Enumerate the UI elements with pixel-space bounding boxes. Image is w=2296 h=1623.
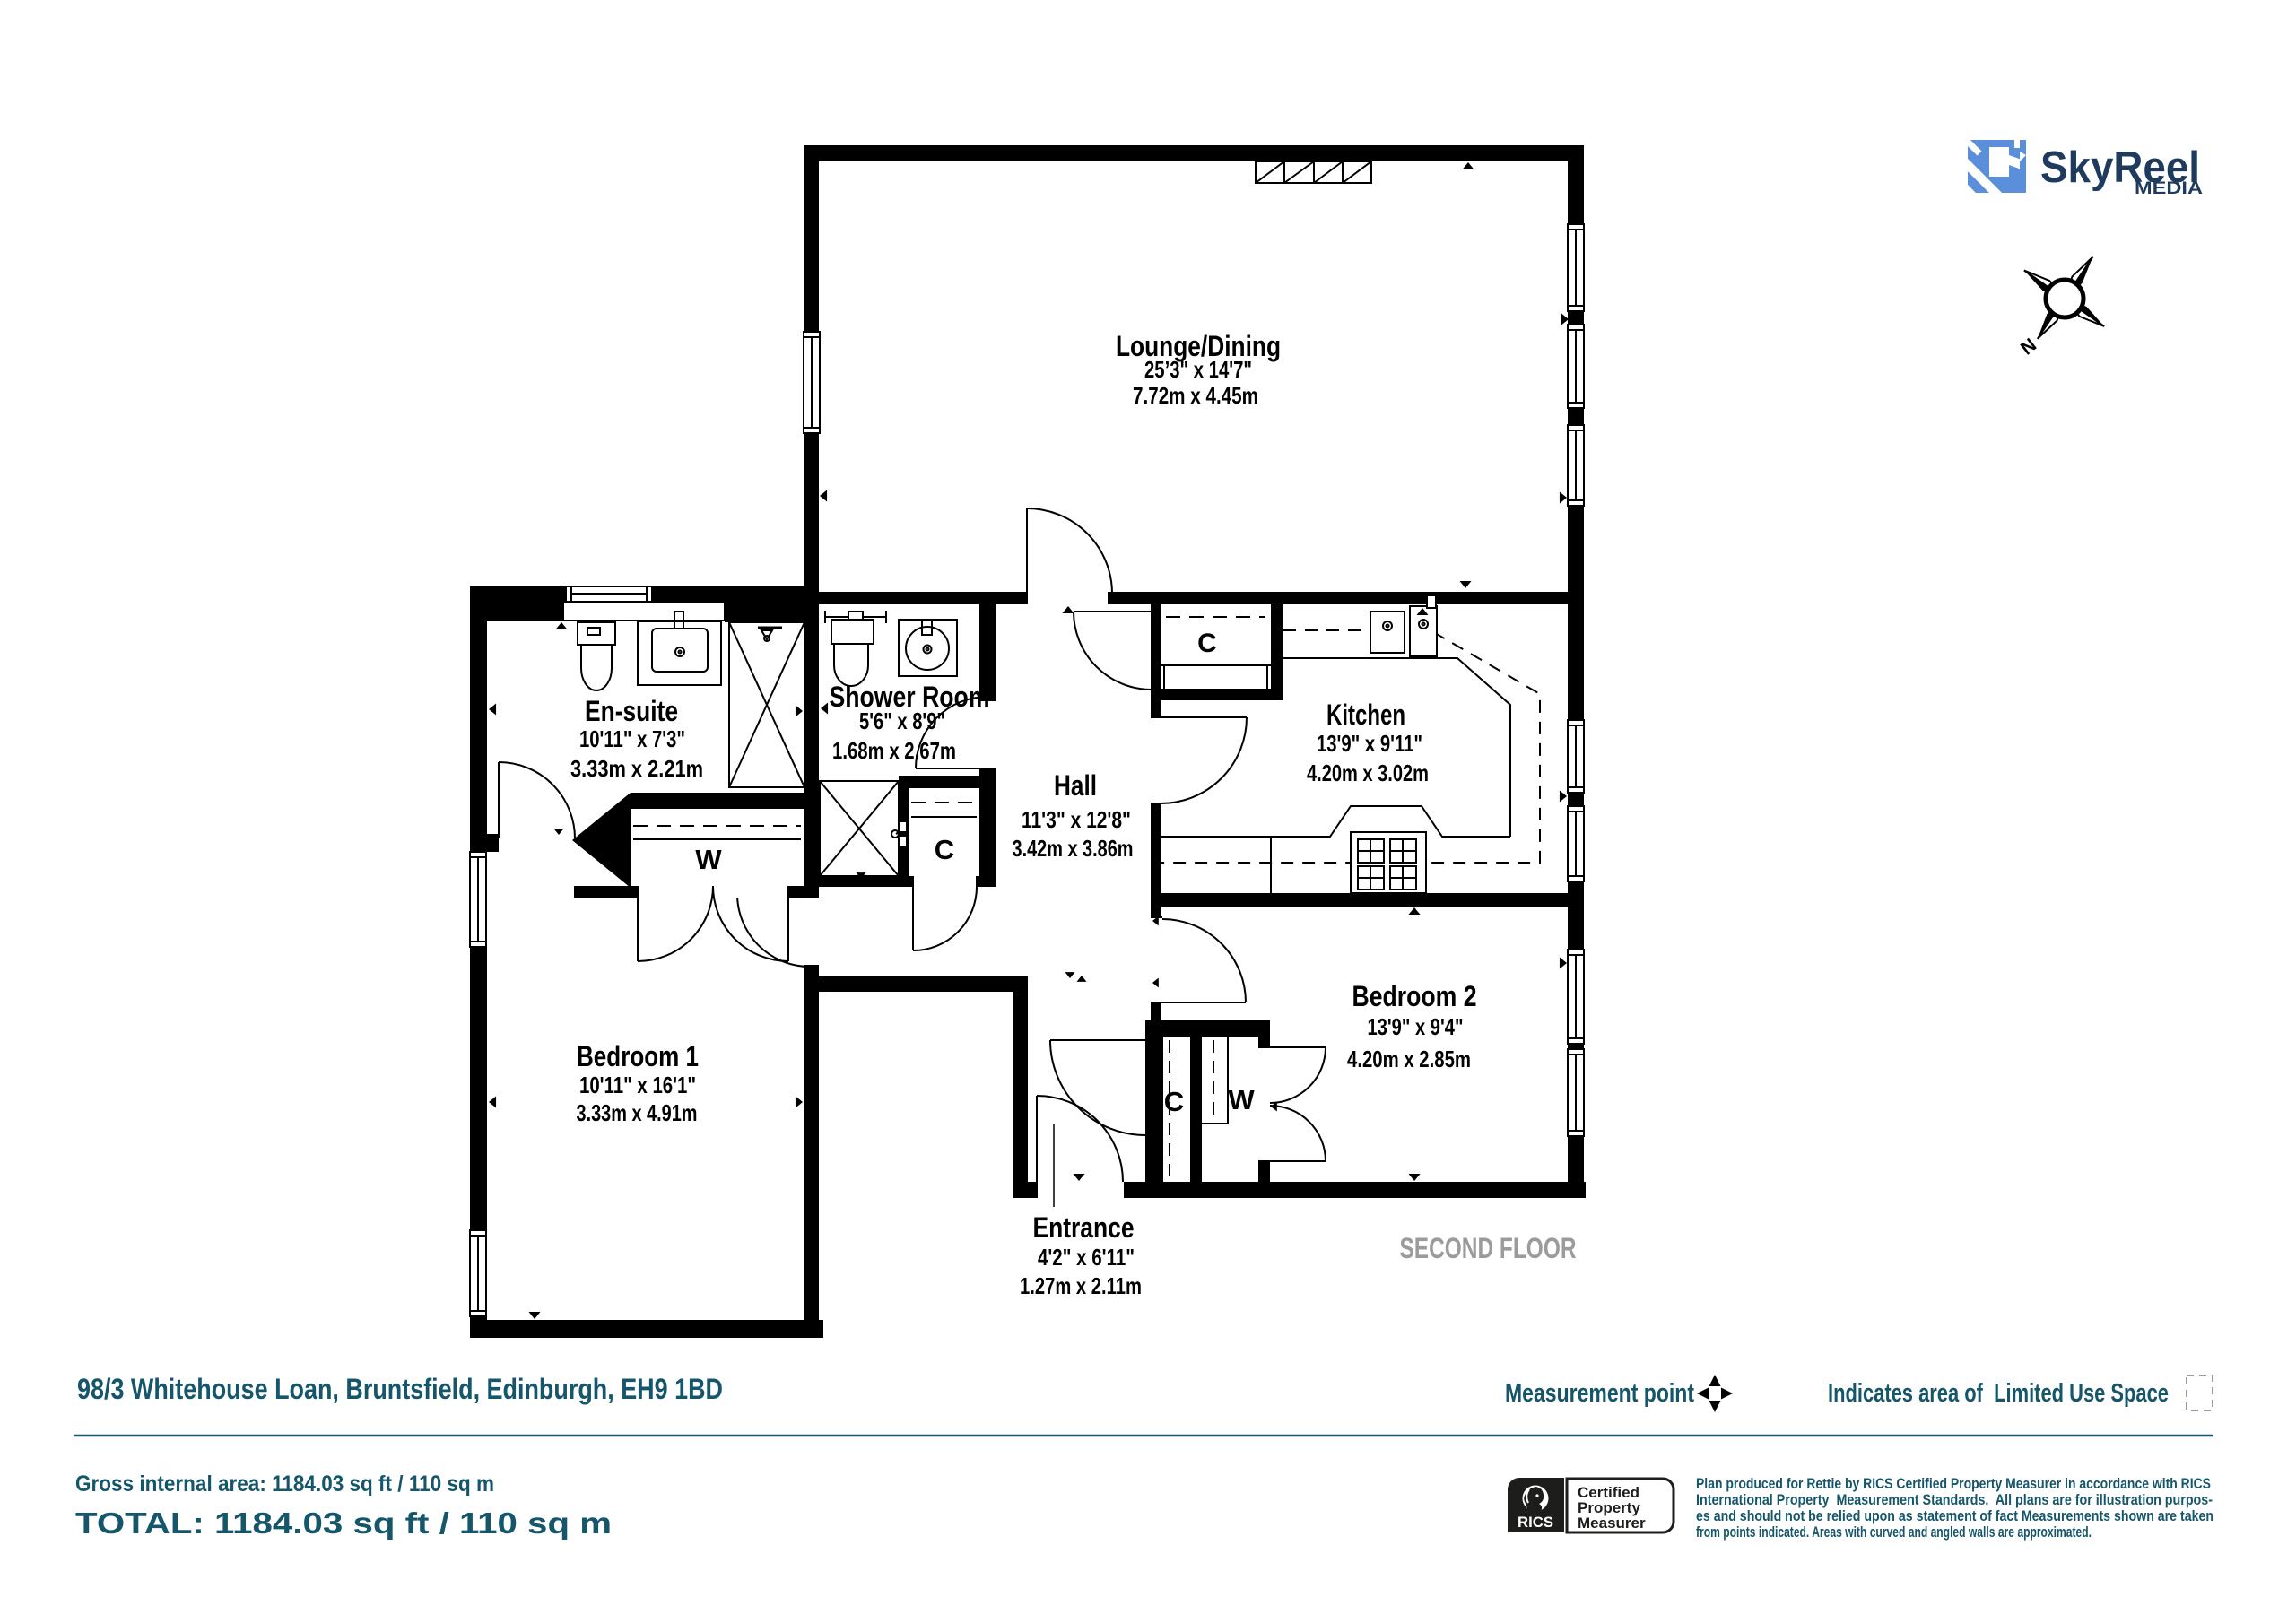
svg-text:W: W [695,844,722,875]
svg-text:4'2" x 6'11": 4'2" x 6'11" [1038,1244,1135,1271]
svg-text:SECOND FLOOR: SECOND FLOOR [1400,1232,1577,1264]
svg-text:1.27m x 2.11m: 1.27m x 2.11m [1020,1272,1142,1299]
svg-text:Hall: Hall [1054,769,1097,802]
svg-text:En-suite: En-suite [585,695,678,727]
svg-text:25’3" x 14'7": 25’3" x 14'7" [1144,356,1252,383]
svg-text:10'11" x 7'3": 10'11" x 7'3" [579,725,685,752]
svg-text:Entrance: Entrance [1033,1211,1135,1244]
svg-text:Measurement point: Measurement point [1505,1379,1694,1408]
svg-text:4.20m x 2.85m: 4.20m x 2.85m [1347,1046,1471,1072]
svg-text:RICS: RICS [1518,1514,1553,1531]
svg-text:W: W [1228,1084,1255,1115]
svg-text:International Property Measur: International Property Measurement Stand… [1696,1492,2213,1508]
svg-text:Bedroom 2: Bedroom 2 [1352,980,1477,1012]
svg-text:13'9" x 9'11": 13'9" x 9'11" [1317,730,1422,757]
svg-text:MEDIA: MEDIA [2135,179,2203,198]
svg-text:7.72m x 4.45m: 7.72m x 4.45m [1133,382,1258,409]
svg-text:10'11" x 16'1": 10'11" x 16'1" [579,1072,696,1098]
svg-text:Kitchen: Kitchen [1326,699,1405,731]
svg-text:13'9" x 9'4": 13'9" x 9'4" [1368,1013,1464,1040]
svg-text:TOTAL: 1184.03 sq ft / 110 sq: TOTAL: 1184.03 sq ft / 110 sq m [75,1506,612,1540]
svg-text:Gross internal area: 1184.03 s: Gross internal area: 1184.03 sq ft / 110… [75,1471,494,1497]
svg-text:5'6" x 8'9": 5'6" x 8'9" [859,707,945,734]
svg-text:C: C [1197,629,1217,658]
svg-text:es and should not be relied up: es and should not be relied upon as stat… [1696,1508,2213,1524]
svg-text:Bedroom 1: Bedroom 1 [577,1040,699,1072]
svg-text:3.33m x 4.91m: 3.33m x 4.91m [577,1099,698,1126]
svg-text:C: C [1164,1086,1184,1117]
svg-text:3.33m x 2.21m: 3.33m x 2.21m [570,755,703,782]
svg-text:11'3" x 12'8": 11'3" x 12'8" [1022,806,1131,833]
svg-text:1.68m x 2.67m: 1.68m x 2.67m [832,737,956,764]
svg-text:3.42m x 3.86m: 3.42m x 3.86m [1013,835,1134,862]
svg-text:C: C [935,834,954,865]
svg-text:98/3 Whitehouse Loan, Bruntsfi: 98/3 Whitehouse Loan, Bruntsfield, Edinb… [77,1373,723,1405]
svg-text:from points indicated. Areas w: from points indicated. Areas with curved… [1696,1524,2092,1541]
svg-text:Indicates area of Limited Use: Indicates area of Limited Use Space [1828,1379,2169,1408]
svg-text:Plan produced for Rettie by RI: Plan produced for Rettie by RICS Certifi… [1696,1476,2211,1492]
svg-text:Measurer: Measurer [1578,1515,1646,1532]
svg-text:4.20m x 3.02m: 4.20m x 3.02m [1307,759,1429,786]
